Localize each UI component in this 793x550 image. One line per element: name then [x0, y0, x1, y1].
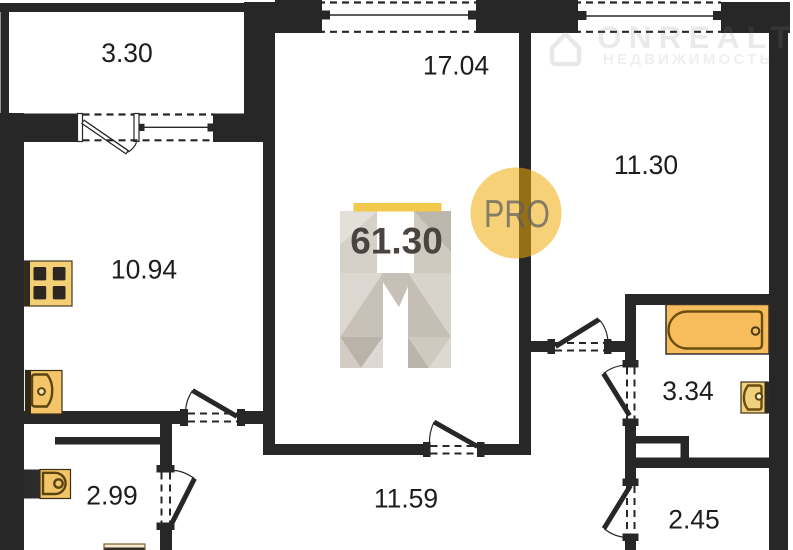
- svg-text:2.99: 2.99: [86, 481, 138, 511]
- svg-text:61.30: 61.30: [350, 221, 443, 262]
- svg-text:3.34: 3.34: [662, 376, 714, 406]
- svg-text:2.45: 2.45: [668, 505, 720, 535]
- svg-text:10.94: 10.94: [111, 255, 177, 285]
- svg-text:17.04: 17.04: [423, 51, 489, 81]
- svg-text:3.30: 3.30: [101, 38, 153, 68]
- svg-text:11.59: 11.59: [374, 484, 438, 514]
- svg-text:НЕДВИЖИМОСТЬ: НЕДВИЖИМОСТЬ: [603, 51, 773, 68]
- svg-text:PRO: PRO: [484, 192, 550, 235]
- svg-text:11.30: 11.30: [614, 150, 678, 180]
- svg-text:ONREALT: ONREALT: [597, 19, 793, 55]
